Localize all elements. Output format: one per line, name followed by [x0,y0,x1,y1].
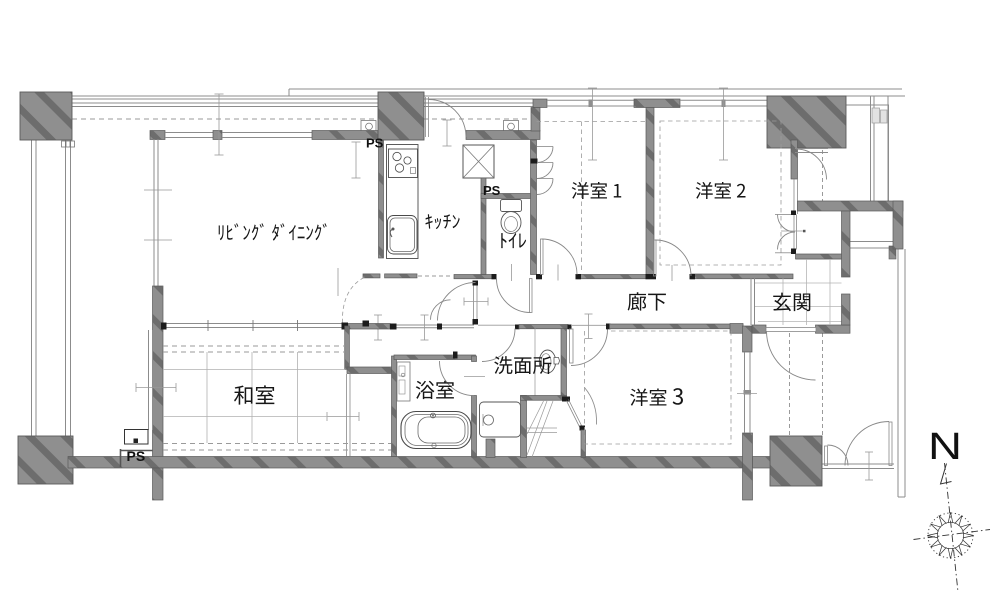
svg-text:PS: PS [366,136,384,151]
svg-text:N: N [928,425,962,468]
svg-text:PS: PS [483,183,501,198]
svg-text:PS: PS [127,448,146,464]
